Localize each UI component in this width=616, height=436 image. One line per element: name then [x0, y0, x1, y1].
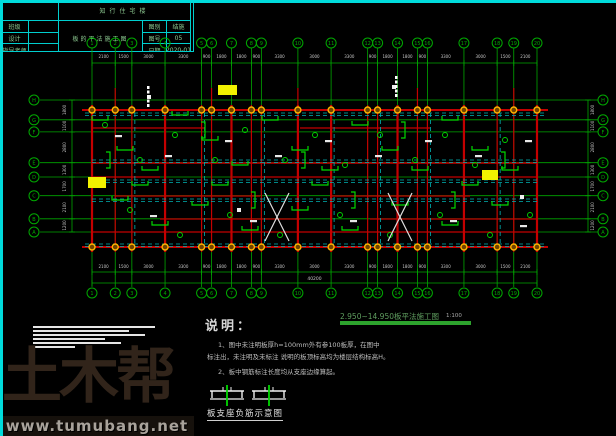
svg-text:1800: 1800	[402, 264, 413, 269]
frame-border-left	[0, 0, 3, 436]
svg-text:B: B	[601, 217, 605, 223]
svg-text:D: D	[601, 175, 605, 181]
svg-text:14: 14	[394, 291, 400, 297]
slab-edges	[85, 113, 545, 247]
cad-viewport: 2100210015001500300030003300330090090018…	[0, 0, 616, 436]
svg-text:1800: 1800	[216, 54, 227, 59]
svg-text:C: C	[32, 194, 36, 200]
svg-text:H: H	[601, 98, 605, 104]
svg-text:19: 19	[511, 41, 517, 47]
svg-text:2100: 2100	[99, 264, 110, 269]
plan-title-underline	[340, 321, 471, 325]
svg-text:900: 900	[203, 264, 211, 269]
note-line-3: 2、板中钢筋标注长度均从支座边缘算起。	[218, 366, 339, 376]
svg-text:10: 10	[295, 41, 301, 47]
svg-text:18: 18	[494, 291, 500, 297]
svg-text:3: 3	[130, 291, 133, 297]
svg-text:1800: 1800	[62, 104, 67, 115]
rebar-hooks	[92, 111, 518, 230]
svg-text:19: 19	[511, 291, 517, 297]
svg-text:17: 17	[461, 291, 467, 297]
svg-text:2100: 2100	[520, 54, 531, 59]
svg-text:18: 18	[494, 41, 500, 47]
svg-text:14: 14	[394, 41, 400, 47]
detail-caption: 板支座负筋示意图	[207, 407, 283, 421]
svg-text:5: 5	[200, 41, 203, 47]
svg-text:9: 9	[260, 291, 263, 297]
svg-text:900: 900	[253, 54, 261, 59]
svg-text:4: 4	[163, 41, 166, 47]
svg-text:G: G	[32, 118, 36, 124]
axis-bubbles: 1122334455667788991010111112121313141415…	[29, 38, 608, 298]
svg-text:A: A	[601, 230, 605, 236]
svg-text:900: 900	[419, 54, 427, 59]
svg-text:E: E	[32, 161, 35, 167]
svg-text:3000: 3000	[143, 54, 154, 59]
svg-text:15: 15	[414, 291, 420, 297]
svg-text:1100: 1100	[590, 120, 595, 131]
note-line-2: 标注出，未注明及未标注 说明的板顶标高均为楼层结构标高H。	[207, 351, 389, 361]
svg-text:E: E	[601, 161, 604, 167]
svg-text:1300: 1300	[590, 164, 595, 175]
svg-text:1700: 1700	[590, 181, 595, 192]
svg-text:H: H	[32, 98, 36, 104]
svg-text:6: 6	[210, 41, 213, 47]
svg-text:1800: 1800	[402, 54, 413, 59]
note-line-1: 1、图中未注明板厚h=100mm外有参100板厚，在图中	[218, 339, 380, 349]
svg-text:16: 16	[424, 41, 430, 47]
svg-text:1500: 1500	[118, 54, 129, 59]
svg-text:16: 16	[424, 291, 430, 297]
svg-text:3: 3	[130, 41, 133, 47]
svg-text:1200: 1200	[62, 220, 67, 231]
svg-text:900: 900	[419, 264, 427, 269]
support-detail-sketch	[210, 385, 286, 406]
svg-text:F: F	[33, 130, 36, 136]
svg-text:3300: 3300	[344, 264, 355, 269]
notes-heading: 说明：	[205, 315, 253, 334]
svg-text:3300: 3300	[275, 264, 286, 269]
svg-text:7: 7	[230, 291, 233, 297]
watermark-logo: 土木帮	[2, 346, 198, 409]
svg-text:3000: 3000	[475, 264, 486, 269]
svg-text:A: A	[32, 230, 36, 236]
svg-text:3000: 3000	[309, 264, 320, 269]
svg-text:2800: 2800	[590, 142, 595, 153]
svg-text:9: 9	[260, 41, 263, 47]
svg-text:1800: 1800	[236, 54, 247, 59]
svg-text:B: B	[32, 217, 36, 223]
svg-text:13: 13	[374, 291, 380, 297]
svg-text:2100: 2100	[62, 202, 67, 213]
svg-text:900: 900	[253, 264, 261, 269]
svg-text:F: F	[602, 130, 605, 136]
svg-text:11: 11	[328, 291, 334, 297]
svg-text:1800: 1800	[590, 104, 595, 115]
svg-text:1500: 1500	[500, 264, 511, 269]
svg-text:20: 20	[534, 291, 540, 297]
svg-text:900: 900	[369, 264, 377, 269]
svg-text:1700: 1700	[62, 181, 67, 192]
svg-text:1500: 1500	[118, 264, 129, 269]
svg-text:3000: 3000	[309, 54, 320, 59]
svg-text:2100: 2100	[590, 202, 595, 213]
svg-text:1300: 1300	[62, 164, 67, 175]
svg-text:1: 1	[90, 291, 93, 297]
svg-text:5: 5	[200, 291, 203, 297]
svg-text:1800: 1800	[216, 264, 227, 269]
svg-text:3300: 3300	[441, 264, 452, 269]
svg-text:2100: 2100	[520, 264, 531, 269]
svg-text:C: C	[601, 194, 605, 200]
svg-text:12: 12	[364, 41, 370, 47]
svg-text:1800: 1800	[382, 54, 393, 59]
svg-text:2100: 2100	[99, 54, 110, 59]
svg-text:3300: 3300	[344, 54, 355, 59]
svg-text:2: 2	[114, 291, 117, 297]
svg-text:1800: 1800	[236, 264, 247, 269]
svg-text:900: 900	[369, 54, 377, 59]
svg-text:7: 7	[230, 41, 233, 47]
watermark-url: www.tumubang.net	[0, 416, 194, 436]
svg-text:13: 13	[374, 41, 380, 47]
annotation-marks	[115, 76, 532, 227]
svg-text:12: 12	[364, 291, 370, 297]
svg-text:1200: 1200	[590, 220, 595, 231]
svg-text:3000: 3000	[475, 54, 486, 59]
svg-text:1: 1	[90, 41, 93, 47]
svg-text:10: 10	[295, 291, 301, 297]
svg-text:900: 900	[203, 54, 211, 59]
svg-text:20: 20	[534, 41, 540, 47]
svg-text:D: D	[32, 175, 36, 181]
svg-text:8: 8	[250, 41, 253, 47]
svg-text:1500: 1500	[500, 54, 511, 59]
svg-text:40200: 40200	[307, 276, 321, 282]
svg-text:15: 15	[414, 41, 420, 47]
frame-border-top	[0, 0, 616, 3]
svg-text:1800: 1800	[382, 264, 393, 269]
plan-scale: 1:100	[446, 313, 462, 319]
svg-text:3300: 3300	[441, 54, 452, 59]
svg-text:2: 2	[114, 41, 117, 47]
svg-text:3300: 3300	[178, 264, 189, 269]
svg-text:6: 6	[210, 291, 213, 297]
svg-text:G: G	[601, 118, 605, 124]
svg-text:3300: 3300	[275, 54, 286, 59]
svg-text:17: 17	[461, 41, 467, 47]
svg-text:2800: 2800	[62, 142, 67, 153]
svg-text:3000: 3000	[143, 264, 154, 269]
svg-text:3300: 3300	[178, 54, 189, 59]
svg-text:8: 8	[250, 291, 253, 297]
svg-text:1100: 1100	[62, 120, 67, 131]
svg-text:4: 4	[163, 291, 166, 297]
svg-text:11: 11	[328, 41, 334, 47]
